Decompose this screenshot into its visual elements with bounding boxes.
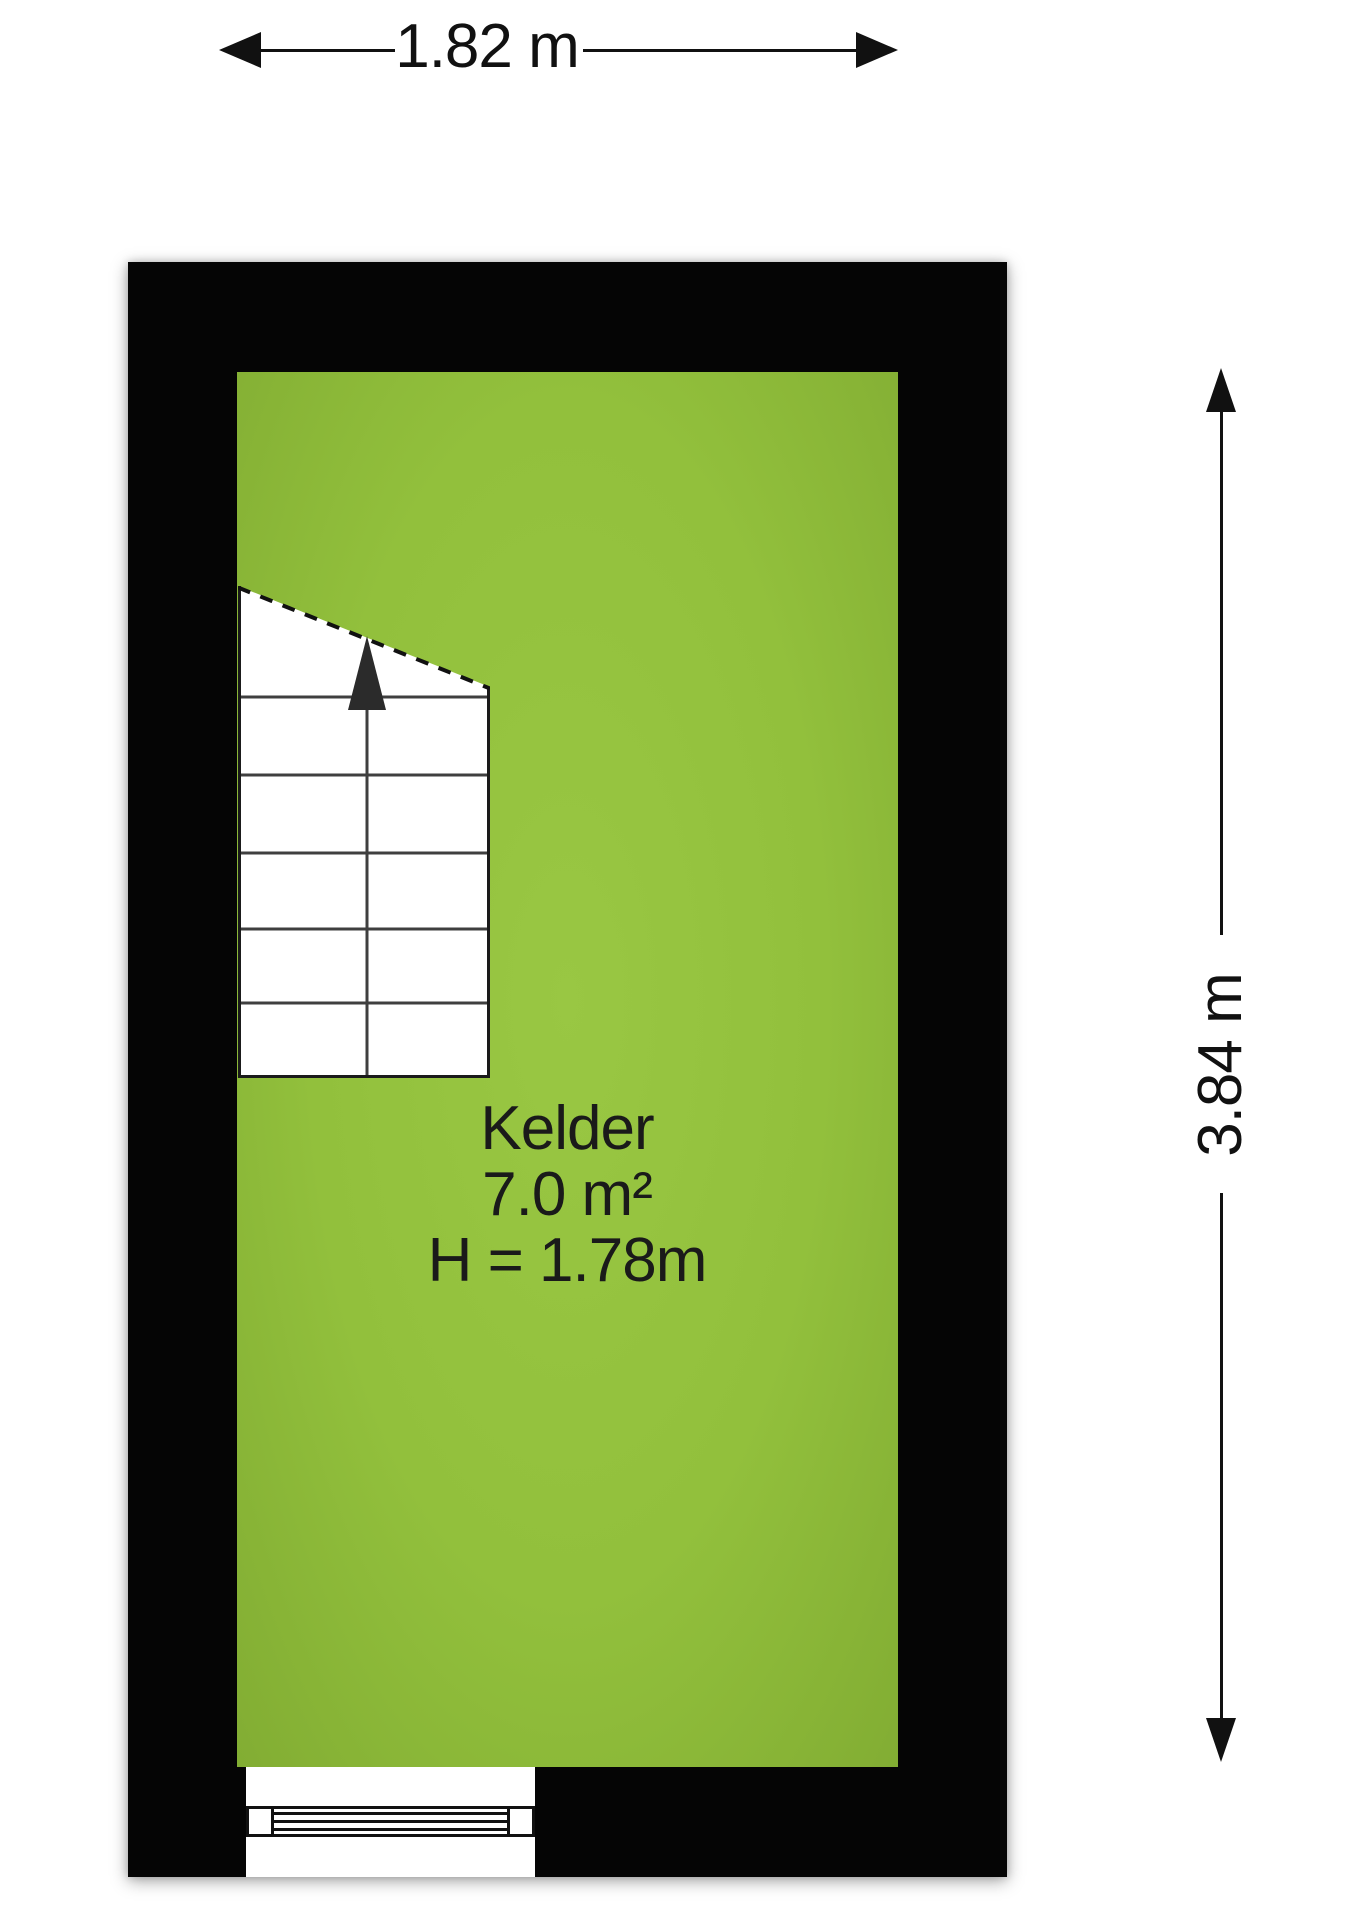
window-glass-line xyxy=(274,1812,507,1815)
window-frame-cap-right xyxy=(507,1809,532,1834)
window-glass-line xyxy=(274,1820,507,1823)
window-frame-cap-left xyxy=(249,1809,274,1834)
room-name: Kelder xyxy=(267,1096,867,1162)
room-label: Kelder 7.0 m² H = 1.78m xyxy=(267,1096,867,1294)
dimension-line xyxy=(1220,1193,1223,1720)
dimension-line xyxy=(583,49,861,52)
window xyxy=(246,1767,535,1877)
room-area: 7.0 m² xyxy=(267,1162,867,1228)
floor-plan-page: { "floorplan": { "room": { "name": "Keld… xyxy=(0,0,1358,1920)
arrow-down-icon xyxy=(1206,1718,1236,1762)
staircase xyxy=(238,586,490,1078)
window-glazing xyxy=(246,1806,535,1837)
arrow-up-icon xyxy=(1206,368,1236,412)
height-dimension-label: 3.84 m xyxy=(1186,915,1256,1215)
room-ceiling-height: H = 1.78m xyxy=(267,1228,867,1294)
arrow-right-icon xyxy=(856,32,898,68)
dimension-line xyxy=(1220,408,1223,935)
width-dimension-label: 1.82 m xyxy=(337,12,637,82)
window-glass-line xyxy=(274,1828,507,1831)
